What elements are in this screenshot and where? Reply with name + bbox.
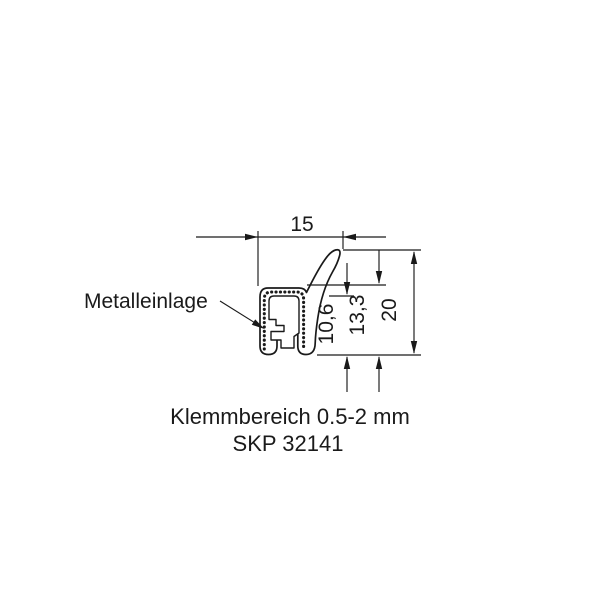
metal-insert-label: Metalleinlage — [84, 290, 208, 313]
part-number-caption: SKP 32141 — [233, 431, 344, 456]
dim-total-height-value: 20 — [378, 298, 401, 321]
arrowhead-down-icon — [411, 341, 417, 354]
arrowhead-left-icon — [343, 234, 356, 240]
dim-width-value: 15 — [290, 213, 313, 236]
seal-profile-drawing: 15 20 13,3 10,6 — [0, 0, 600, 600]
arrowhead-down-icon — [376, 271, 382, 284]
drawing-captions: Klemmbereich 0.5-2 mm SKP 32141 — [170, 404, 410, 456]
metal-insert-callout: Metalleinlage — [84, 290, 265, 329]
technical-drawing-canvas: 15 20 13,3 10,6 — [0, 0, 600, 600]
arrowhead-right-icon — [245, 234, 258, 240]
dim-inner-height-value: 10,6 — [315, 304, 338, 345]
dim-body-height-value: 13,3 — [346, 295, 369, 336]
arrowhead-up-icon — [344, 356, 350, 369]
arrowhead-up-icon — [411, 251, 417, 264]
arrowhead-down-icon — [344, 282, 350, 295]
arrowhead-up-icon — [376, 356, 382, 369]
clamping-range-caption: Klemmbereich 0.5-2 mm — [170, 404, 410, 429]
